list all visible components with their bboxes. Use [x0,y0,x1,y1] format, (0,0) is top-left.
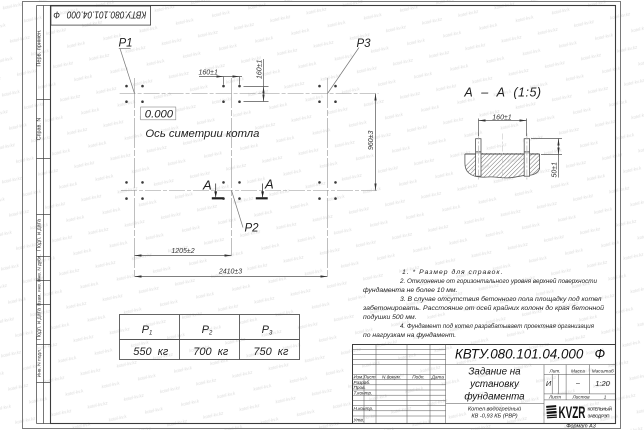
svg-text:Дата: Дата [431,375,445,380]
svg-text:Подп.: Подп. [412,375,424,380]
svg-text:960±3: 960±3 [368,130,375,150]
svg-text:750 кг: 750 кг [253,346,289,358]
svg-text:Инв. N дубл.: Инв. N дубл. [36,254,41,281]
svg-text:Масса: Масса [571,369,585,374]
svg-text:установку: установку [469,379,520,390]
svg-text:забетонировать. Расстояние от: забетонировать. Расстояние от осей крайн… [362,304,604,312]
svg-text:КВТУ.080.101.04.000 Ф: КВТУ.080.101.04.000 Ф [455,346,606,361]
svg-text:ЗАВОД РЭП: ЗАВОД РЭП [588,413,610,418]
svg-text:A: A [202,177,212,192]
svg-text:160±1: 160±1 [492,114,512,121]
svg-text:0.000: 0.000 [145,108,174,120]
svg-text:700 кг: 700 кг [193,346,229,358]
svg-text:Масштаб: Масштаб [592,369,614,374]
svg-text:по нагрузкам на фундамент.: по нагрузкам на фундамент. [363,331,456,339]
svg-text:фундамента не более 10 мм.: фундамента не более 10 мм. [363,286,458,294]
svg-text:2410±3: 2410±3 [218,269,242,276]
svg-text:И: И [546,379,552,388]
svg-text:3. В случае отсутствия бетонно: 3. В случае отсутствия бетонного пола пл… [400,295,602,303]
svg-text:P1: P1 [119,38,133,50]
svg-text:КВ -0,93 КБ (РВР): КВ -0,93 КБ (РВР) [471,414,517,420]
svg-text:КОТЕЛЬНЫЙ: КОТЕЛЬНЫЙ [588,404,613,411]
svg-text:Листов: Листов [571,395,590,400]
svg-text:подушки 500 мм.: подушки 500 мм. [363,313,417,321]
svg-text:1. * Размер для справок.: 1. * Размер для справок. [402,268,504,276]
svg-text:КВТУ.080.101.04.000 Ф: КВТУ.080.101.04.000 Ф [53,9,146,20]
svg-text:Взам. инв. N: Взам. инв. N [36,278,41,305]
svg-text:Формат А3: Формат А3 [566,424,596,430]
svg-text:1:20: 1:20 [595,379,610,388]
svg-text:Изм.Лист: Изм.Лист [354,375,376,380]
svg-text:KVZR: KVZR [559,403,586,421]
svg-text:160±1: 160±1 [257,59,264,79]
svg-text:Котел водогрейный: Котел водогрейный [468,406,521,413]
svg-text:Справ. N: Справ. N [36,118,42,141]
svg-text:4. Фундамент под котел разраба: 4. Фундамент под котел разрабатывает про… [400,322,594,330]
svg-text:Пров.: Пров. [354,385,366,390]
svg-text:550 кг: 550 кг [133,346,169,358]
svg-text:Н.контр.: Н.контр. [354,406,374,411]
svg-text:Ось симетрии котла: Ось симетрии котла [145,128,259,140]
svg-text:160±1: 160±1 [199,70,219,77]
svg-text:Подп. и дата: Подп. и дата [36,308,42,340]
svg-text:Перв. примен.: Перв. примен. [36,29,42,67]
svg-text:Задание на: Задание на [468,367,521,378]
svg-text:фундамента: фундамента [464,392,525,403]
svg-text:P3: P3 [357,38,372,50]
svg-text:Инв. N подл.: Инв. N подл. [36,349,42,378]
svg-text:A: A [264,176,274,191]
svg-text:N докум.: N докум. [382,375,401,380]
svg-text:2. Отклонение от горизонтально: 2. Отклонение от горизонтального уровня … [399,277,597,285]
svg-text:Подп. и дата: Подп. и дата [36,219,42,251]
svg-text:–: – [575,381,580,388]
svg-text:Лит.: Лит. [549,369,561,374]
svg-text:1: 1 [604,395,607,400]
svg-text:А – А (1:5): А – А (1:5) [463,86,541,100]
svg-text:Лист: Лист [548,395,561,400]
svg-text:P2: P2 [245,223,260,235]
svg-text:1205±2: 1205±2 [171,248,194,255]
svg-text:50±1: 50±1 [552,162,559,178]
svg-text:Утв.: Утв. [354,418,365,423]
svg-text:Т.контр.: Т.контр. [354,390,373,395]
